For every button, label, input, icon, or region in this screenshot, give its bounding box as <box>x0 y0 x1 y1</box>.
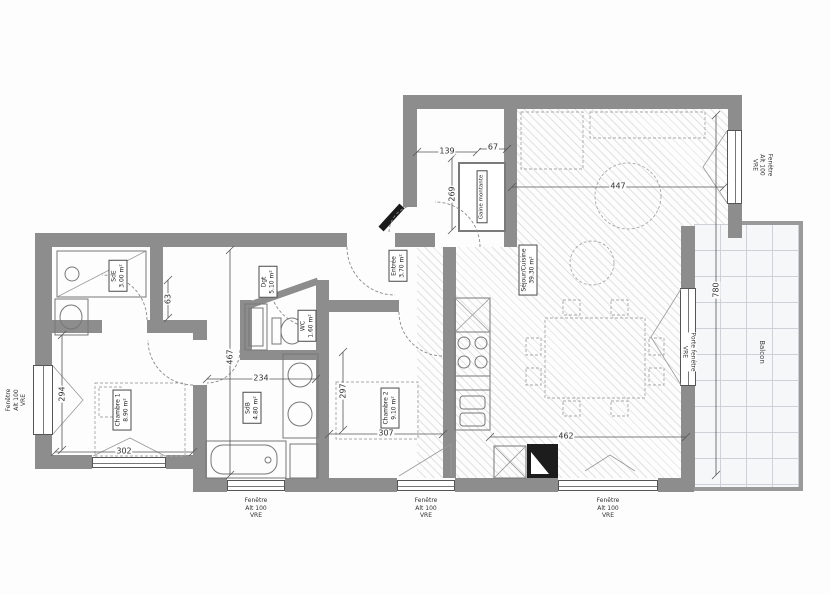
furniture <box>595 163 661 229</box>
kitchen-counter <box>455 298 490 430</box>
floor-plan: 139 67 269 447 780 462 302 294 467 234 6… <box>0 0 831 595</box>
door-arc <box>435 202 480 247</box>
dimension-value: 307 <box>377 429 394 438</box>
dimension-value: 294 <box>58 385 67 402</box>
chair <box>563 300 580 315</box>
closet <box>290 444 318 478</box>
dimension-value: 302 <box>115 447 132 456</box>
entrance-door-leaf <box>381 206 402 229</box>
chair <box>649 368 664 385</box>
room-label-entree: Entrée3.70 m² <box>389 250 408 282</box>
chair <box>563 401 580 416</box>
stove-burner <box>458 337 470 349</box>
window-label-right: FenêtreAlt 100VRE <box>751 154 774 177</box>
room-label-sdb: SdB4.80 m² <box>243 392 262 424</box>
stove-burner <box>475 356 487 368</box>
dimension-value: 234 <box>252 374 269 383</box>
room-label-sejour-cuisine: Séjour/Cuisine39.30 m² <box>519 244 538 295</box>
furniture <box>590 112 705 138</box>
dimension-value: 269 <box>448 185 457 202</box>
room-label-chambre1: Chambre 18.90 m² <box>113 389 132 430</box>
balcony-door-label: Porte fenêtreVRE <box>682 332 697 371</box>
furniture <box>521 112 583 169</box>
dimension-value: 447 <box>609 182 626 191</box>
window-swing <box>703 131 727 203</box>
dimension-value: 67 <box>487 143 499 152</box>
shower-head <box>65 267 79 281</box>
door-arc <box>399 312 443 356</box>
bed-chambre1 <box>95 383 185 456</box>
room-label-dgt: Dgt5.10 m² <box>259 266 278 298</box>
wc-cabinet <box>245 304 267 350</box>
room-label-chambre2: Chambre 29.10 m² <box>381 387 400 428</box>
room-label-wc: WC1.60 m² <box>298 310 317 342</box>
window-label-bottom-1: FenêtreAlt 100VRE <box>245 497 268 520</box>
room-label-sde: SdE3.00 m² <box>109 260 128 292</box>
dining-table <box>545 318 645 398</box>
toilet <box>272 318 281 344</box>
chair <box>611 300 628 315</box>
window-label-left: FenêtreAlt 100VRE <box>5 389 28 412</box>
dimension-value: 462 <box>557 432 574 441</box>
stove-burner <box>475 337 487 349</box>
dimension-value: 467 <box>226 348 235 365</box>
dimension-value: 780 <box>712 281 721 298</box>
kitchen-sink <box>460 396 485 409</box>
room-label-gaine: Gaine montante <box>477 171 488 224</box>
dimension-value: 63 <box>164 293 173 305</box>
window-swing <box>651 289 681 385</box>
window-swing <box>585 455 635 471</box>
furniture <box>570 241 614 285</box>
chair <box>526 338 541 355</box>
double-washbasin <box>283 354 318 438</box>
chair <box>611 401 628 416</box>
door-arc <box>207 350 240 383</box>
chair <box>526 368 541 385</box>
door-arc <box>148 340 193 385</box>
stove-burner <box>458 356 470 368</box>
balcony-label: Balcon <box>758 340 766 364</box>
dimension-value: 139 <box>438 147 455 156</box>
window-swing <box>399 444 451 476</box>
window-label-bottom-2: FenêtreAlt 100VRE <box>415 497 438 520</box>
dimension-value: 297 <box>339 382 348 399</box>
window-label-bottom-3: FenêtreAlt 100VRE <box>597 497 620 520</box>
